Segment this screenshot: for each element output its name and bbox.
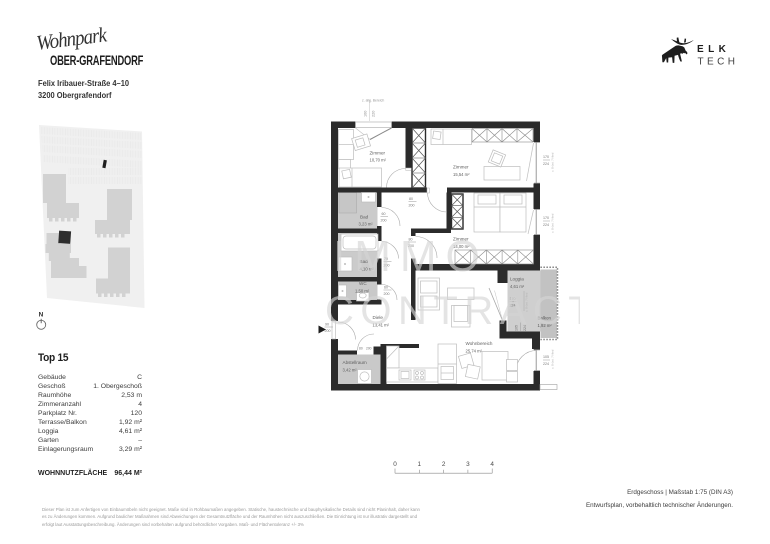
svg-text:WC: WC [359,281,367,286]
svg-text:170: 170 [543,155,549,159]
svg-text:N: N [39,312,44,319]
svg-text:224: 224 [543,223,549,227]
svg-text:10,70 m²: 10,70 m² [370,158,387,163]
svg-text:Wohnbereich: Wohnbereich [466,341,493,346]
svg-text:220: 220 [372,111,376,117]
svg-text:Bad: Bad [360,215,369,220]
svg-text:z. allg. Bereich: z. allg. Bereich [362,99,384,103]
svg-text:Abstellraum: Abstellraum [343,360,367,365]
svg-text:3,23 m²: 3,23 m² [359,221,374,226]
svg-text:15,54 m²: 15,54 m² [453,172,470,177]
svg-text:80: 80 [409,197,413,201]
svg-text:105: 105 [543,355,549,359]
svg-text:224: 224 [543,162,549,166]
svg-text:CONTRACT: CONTRACT [325,289,580,333]
svg-text:25,74 m²: 25,74 m² [466,348,483,353]
svg-text:3,42 m²: 3,42 m² [343,367,358,372]
svg-text:2: 2 [442,461,446,468]
svg-text:TECH: TECH [698,56,739,67]
svg-text:o. Brüst. 7 Nied: o. Brüst. 7 Nied [551,152,555,172]
svg-text:200: 200 [366,347,372,351]
svg-text:3: 3 [466,461,470,468]
svg-text:4: 4 [490,461,494,468]
svg-text:Loggia: Loggia [510,277,524,282]
svg-text:Zimmer: Zimmer [453,165,469,170]
svg-text:0: 0 [393,461,397,468]
svg-text:ELK: ELK [697,44,730,55]
svg-text:o. Brüst. 7 Nied: o. Brüst. 7 Nied [551,213,555,233]
svg-text:100: 100 [364,111,368,117]
svg-text:224: 224 [543,362,549,366]
svg-text:170: 170 [543,216,549,220]
svg-text:200: 200 [409,204,415,208]
svg-text:60: 60 [382,212,386,216]
svg-text:IMMO: IMMO [333,232,489,281]
svg-text:o. Brüst. 7 Nied: o. Brüst. 7 Nied [551,349,555,369]
svg-text:Zimmer: Zimmer [370,151,386,156]
svg-text:80: 80 [359,347,363,351]
svg-text:200: 200 [381,219,387,223]
svg-text:1: 1 [418,461,422,468]
